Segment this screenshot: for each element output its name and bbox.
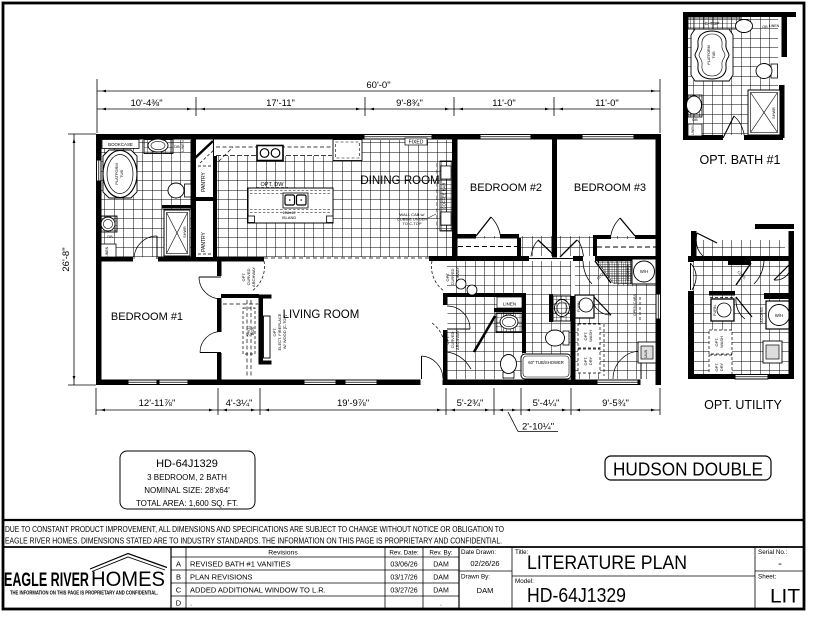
- svg-text:W/H: W/H: [640, 269, 648, 274]
- svg-text:LIT: LIT: [770, 587, 800, 608]
- svg-text:HUDSON DOUBLE: HUDSON DOUBLE: [613, 459, 763, 480]
- svg-text:BEDROOM #2: BEDROOM #2: [470, 182, 542, 194]
- svg-text:OPT. BATH #1: OPT. BATH #1: [699, 153, 780, 167]
- svg-text:BEDROOM #1: BEDROOM #1: [111, 311, 183, 323]
- svg-text:11'-0": 11'-0": [492, 98, 516, 109]
- svg-text:WASH: WASH: [588, 330, 593, 342]
- svg-text:DAM: DAM: [433, 575, 449, 582]
- svg-text:COFFEE BAR: COFFEE BAR: [442, 183, 447, 210]
- svg-text:TOTAL AREA: 1,600 SQ. FT.: TOTAL AREA: 1,600 SQ. FT.: [136, 499, 238, 508]
- svg-text:19'-9⅞": 19'-9⅞": [337, 398, 369, 409]
- svg-text:Serial No.:: Serial No.:: [758, 549, 788, 556]
- svg-text:ARCHWAY: ARCHWAY: [251, 267, 256, 287]
- svg-text:-: -: [778, 558, 782, 570]
- svg-text:LAUN: LAUN: [644, 349, 648, 358]
- svg-text:Drawn By:: Drawn By:: [461, 574, 490, 581]
- svg-text:LINEN: LINEN: [691, 125, 695, 135]
- svg-text:FURN.: FURN.: [713, 304, 717, 316]
- svg-text:LINEN: LINEN: [105, 246, 109, 257]
- svg-text:DB: DB: [692, 118, 698, 122]
- svg-text:D: D: [176, 599, 182, 608]
- svg-text:DUE TO CONSTANT PRODUCT IMPROV: DUE TO CONSTANT PRODUCT IMPROVEMENT, ALL…: [5, 524, 504, 534]
- svg-text:ARCHWAY: ARCHWAY: [455, 330, 460, 350]
- svg-text:3 BEDROOM, 2 BATH: 3 BEDROOM, 2 BATH: [147, 473, 227, 482]
- svg-text:ADDED ADDITIONAL WINDOW TO L.R: ADDED ADDITIONAL WINDOW TO L.R.: [190, 586, 326, 595]
- svg-text:Sheet:: Sheet:: [758, 574, 776, 581]
- svg-text:BOX: BOX: [250, 326, 255, 335]
- svg-text:DB: DB: [762, 25, 768, 29]
- svg-text:26'-8": 26'-8": [61, 247, 72, 271]
- svg-text:9'-8¾": 9'-8¾": [396, 98, 423, 109]
- svg-text:03/06/26: 03/06/26: [390, 562, 417, 569]
- svg-text:DAM: DAM: [433, 562, 449, 569]
- svg-text:TUB: TUB: [712, 51, 716, 59]
- svg-text:DB: DB: [174, 145, 180, 149]
- svg-text:OPEN CABS: OPEN CABS: [633, 293, 637, 316]
- svg-text:DAM: DAM: [477, 586, 494, 595]
- svg-text:DRY: DRY: [719, 362, 724, 371]
- svg-text:OPT. DW: OPT. DW: [261, 182, 285, 188]
- svg-text:BEDROOM #3: BEDROOM #3: [574, 182, 646, 194]
- svg-text:DINING ROOM: DINING ROOM: [360, 175, 439, 187]
- svg-text:LINEN: LINEN: [769, 24, 780, 28]
- svg-text:9'-5¾": 9'-5¾": [602, 398, 629, 409]
- svg-text:60'-0": 60'-0": [366, 80, 390, 91]
- svg-text:REVISED BATH #1 VANITIES: REVISED BATH #1 VANITIES: [190, 560, 291, 569]
- svg-text:C: C: [176, 586, 182, 595]
- svg-text:DRY: DRY: [588, 356, 593, 365]
- svg-text:C-TOP: C-TOP: [705, 21, 720, 27]
- svg-text:ACCESS: ACCESS: [626, 265, 630, 281]
- svg-text:60” TUB/SHOWER: 60” TUB/SHOWER: [528, 360, 564, 365]
- svg-text:A: A: [176, 560, 181, 569]
- svg-text:12'-11⅞": 12'-11⅞": [139, 398, 176, 409]
- svg-text:PLATFORM: PLATFORM: [707, 45, 711, 64]
- svg-text:Rev. By:: Rev. By:: [429, 550, 453, 557]
- svg-text:4'-3¼": 4'-3¼": [226, 398, 253, 409]
- svg-text:LIVING ROOM: LIVING ROOM: [283, 309, 360, 321]
- svg-text:EAGLE RIVER HOMES. DIMENSIONS: EAGLE RIVER HOMES. DIMENSIONS STATED ARE…: [5, 536, 502, 546]
- svg-text:Date Drawn:: Date Drawn:: [461, 549, 496, 556]
- svg-text:.: .: [440, 601, 442, 608]
- svg-text:LINEN: LINEN: [503, 302, 516, 307]
- svg-text:5'-2¾": 5'-2¾": [457, 398, 484, 409]
- svg-text:PANTRY: PANTRY: [201, 171, 207, 191]
- svg-text:EAGLE RIVER: EAGLE RIVER: [4, 570, 89, 591]
- svg-text:11'-0": 11'-0": [595, 98, 619, 109]
- svg-text:DB: DB: [107, 235, 113, 239]
- svg-text:HD-64J1329: HD-64J1329: [527, 585, 626, 607]
- svg-text:ISLAND: ISLAND: [282, 215, 297, 220]
- svg-text:B: B: [176, 573, 181, 582]
- svg-text:02/26/26: 02/26/26: [470, 559, 499, 568]
- svg-text:OPT. UTILITY: OPT. UTILITY: [704, 398, 782, 412]
- svg-text:HD-64J1329: HD-64J1329: [156, 458, 218, 470]
- svg-text:PANTRY: PANTRY: [201, 231, 207, 251]
- svg-text:03/27/26: 03/27/26: [390, 588, 417, 595]
- svg-text:17'-11": 17'-11": [266, 98, 295, 109]
- svg-text:DAM: DAM: [433, 588, 449, 595]
- svg-text:W/H: W/H: [775, 313, 783, 318]
- svg-text:SHWR: SHWR: [183, 226, 187, 238]
- svg-text:Revisions: Revisions: [268, 550, 298, 557]
- svg-text:TUB: TUB: [119, 170, 124, 178]
- svg-text:Rev. Date:: Rev. Date:: [389, 550, 419, 557]
- svg-text:Model:: Model:: [515, 578, 534, 585]
- svg-text:HOMES: HOMES: [91, 568, 165, 591]
- svg-text:LINEN: LINEN: [181, 140, 185, 151]
- svg-text:TO C-TOP: TO C-TOP: [403, 221, 422, 226]
- svg-text:LITERATURE PLAN: LITERATURE PLAN: [527, 552, 687, 574]
- svg-text:FURN.: FURN.: [577, 300, 581, 312]
- svg-text:FIXED: FIXED: [409, 140, 424, 146]
- svg-text:10'-4⅜": 10'-4⅜": [130, 98, 162, 109]
- svg-text:NOMINAL SIZE: 28'x64': NOMINAL SIZE: 28'x64': [144, 486, 230, 495]
- svg-text:2'-10¼": 2'-10¼": [522, 422, 554, 433]
- svg-text:WASH: WASH: [719, 336, 724, 348]
- svg-text:03/17/26: 03/17/26: [390, 575, 417, 582]
- svg-text:PLAN REVISIONS: PLAN REVISIONS: [190, 573, 253, 582]
- svg-text:.: .: [190, 599, 192, 608]
- svg-text:SHWR: SHWR: [772, 107, 776, 119]
- svg-text:BOOKCASE: BOOKCASE: [108, 142, 133, 147]
- svg-text:THE INFORMATION ON THIS PAGE I: THE INFORMATION ON THIS PAGE IS PROPRIET…: [10, 591, 158, 597]
- svg-text:ACCESS: ACCESS: [760, 307, 764, 323]
- svg-text:5'-4¼": 5'-4¼": [533, 398, 560, 409]
